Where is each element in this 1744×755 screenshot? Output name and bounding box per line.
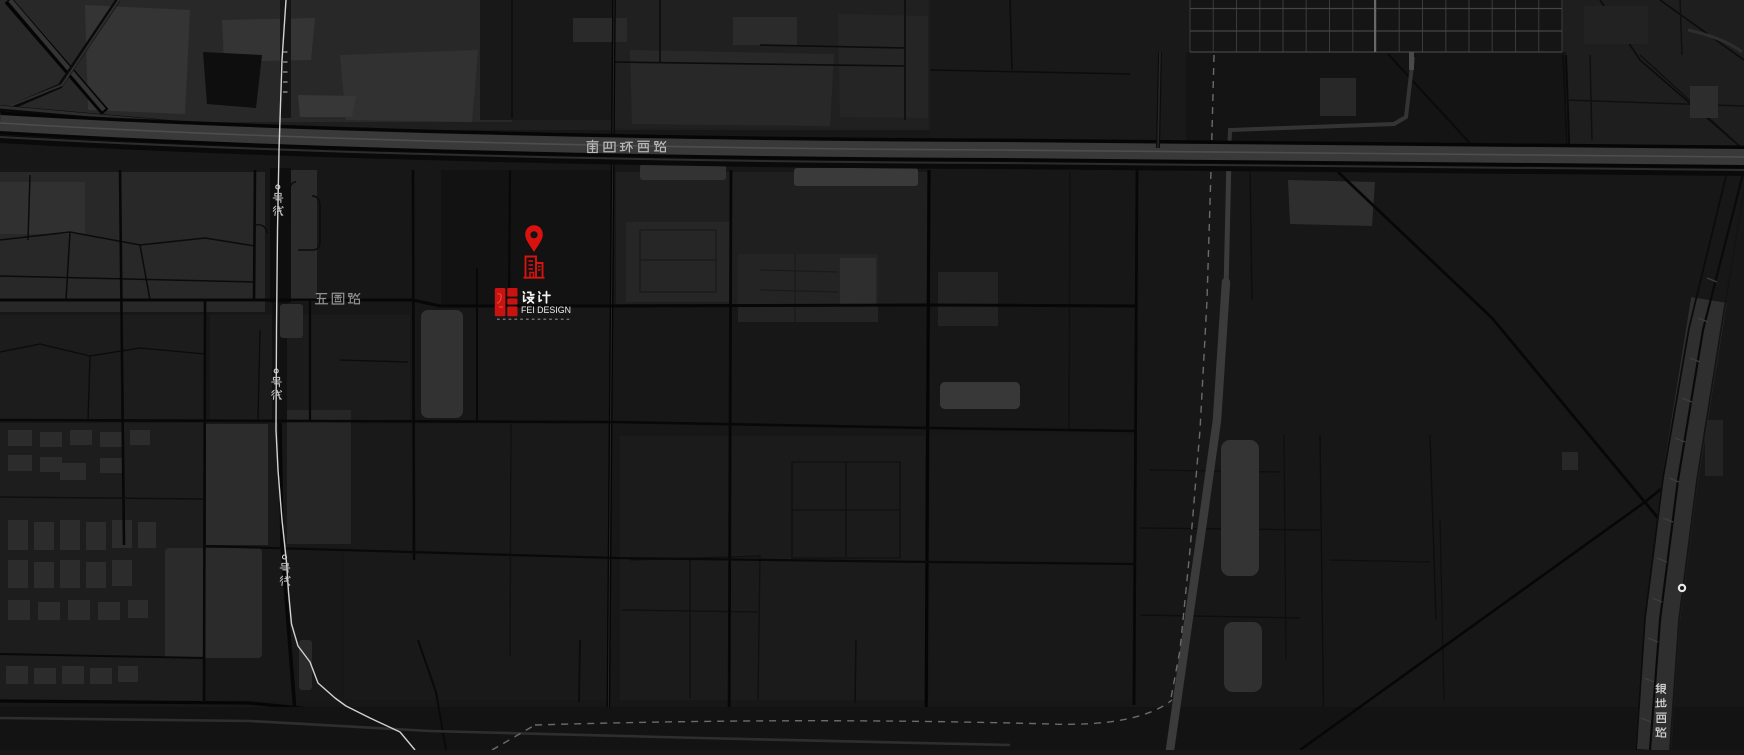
- svg-text:FEI DESIGN: FEI DESIGN: [521, 305, 571, 315]
